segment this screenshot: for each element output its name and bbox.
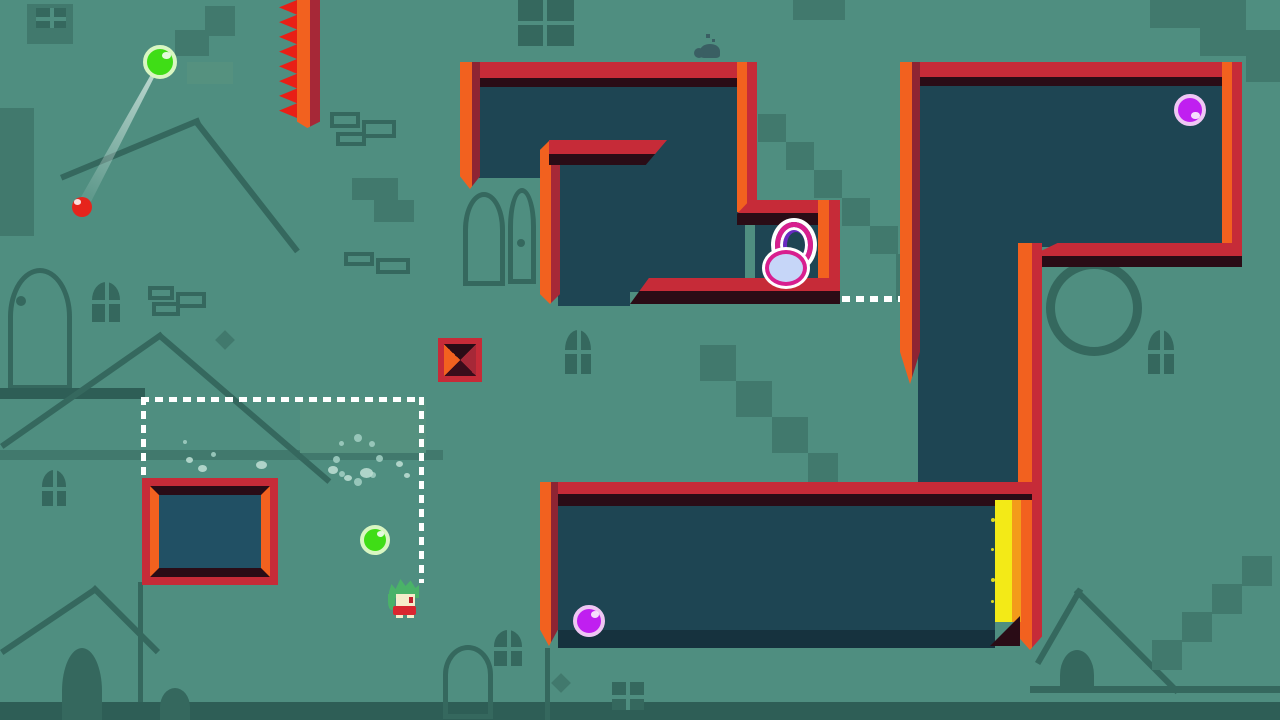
ball-highlight	[591, 611, 599, 618]
ball-highlight	[74, 199, 81, 205]
ball-red-small[interactable]	[72, 197, 92, 217]
ball-purple-top[interactable]	[1174, 94, 1206, 126]
player-foot-right	[407, 615, 414, 618]
spike-bar	[297, 0, 320, 128]
aim-trajectory	[76, 59, 165, 210]
ball-highlight	[1191, 112, 1199, 119]
capture-zone-right	[419, 397, 424, 583]
player-eye	[409, 597, 413, 603]
ghost-platform	[842, 296, 900, 302]
critter-speck-2	[712, 39, 715, 42]
player-character[interactable]	[388, 578, 420, 618]
ball-green-aimed[interactable]	[143, 45, 177, 79]
ball-highlight	[162, 52, 171, 59]
ball-green[interactable]	[360, 525, 390, 555]
critter-head	[694, 48, 704, 58]
game-viewport[interactable]	[0, 0, 1280, 720]
ball-highlight	[377, 531, 384, 537]
ball-purple-bottom[interactable]	[573, 605, 605, 637]
rings-bubble	[765, 250, 807, 286]
capture-zone-left	[141, 397, 146, 480]
spike-teeth	[279, 0, 297, 118]
spike-block	[438, 338, 482, 382]
snail-critter	[692, 34, 724, 60]
player-scarf-body	[393, 606, 416, 615]
player-foot-left	[396, 615, 403, 618]
capture-zone-top	[141, 397, 424, 402]
rings-pickup[interactable]	[763, 222, 821, 288]
critter-speck-1	[706, 34, 710, 38]
entities-layer	[0, 0, 1280, 720]
